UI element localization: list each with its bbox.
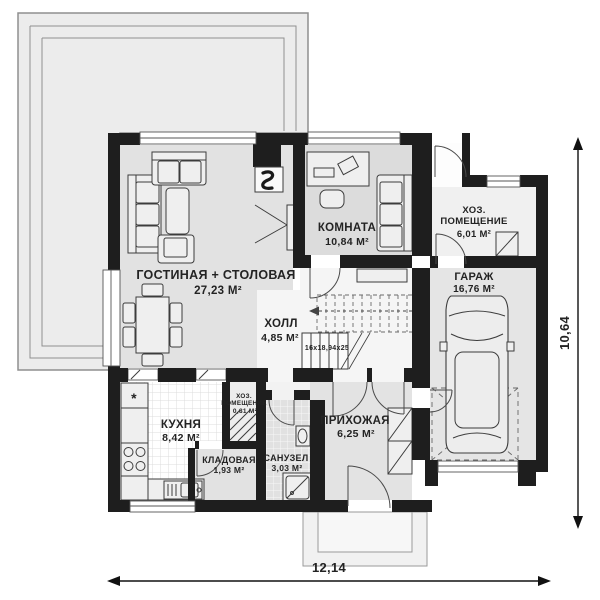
- utility-name-line2: ПОМЕЩЕНИЕ: [440, 216, 507, 227]
- passage-floor: [268, 368, 293, 382]
- utility-small-area: 0,81 М²: [233, 408, 258, 415]
- kitchen-pass-through-left: [128, 369, 158, 380]
- dimension-height-value: 10,64: [557, 316, 572, 351]
- utility-small-name-line1: ХОЗ.: [236, 393, 252, 400]
- car: [440, 296, 514, 453]
- garage-gate: [438, 461, 518, 472]
- utility-name-line1: ХОЗ.: [462, 205, 485, 216]
- floor-plan-page: ГОСТИНАЯ + СТОЛОВАЯ 27,23 М² КОМНАТА 10,…: [0, 0, 600, 600]
- kitchen-window: [130, 501, 195, 512]
- pantry-name: КЛАДОВАЯ: [202, 455, 255, 465]
- entry-wardrobe: [388, 408, 412, 474]
- bathroom-area: 3,03 М²: [272, 463, 303, 473]
- kitchen-pass-through-right: [196, 369, 226, 380]
- fireplace-stove: [255, 167, 283, 192]
- boiler: [496, 232, 518, 256]
- floor-plan-svg: ГОСТИНАЯ + СТОЛОВАЯ 27,23 М² КОМНАТА 10,…: [0, 0, 600, 600]
- desk-chair: [320, 190, 344, 208]
- utility-window: [487, 176, 520, 187]
- living-room-area: 27,23 М²: [194, 285, 242, 297]
- room-sofa: [377, 175, 412, 251]
- garage-area: 16,76 М²: [453, 284, 495, 295]
- hall-console: [357, 269, 407, 282]
- dimension-width-value: 12,14: [312, 560, 347, 575]
- living-room-side-window: [103, 270, 120, 366]
- tv: [287, 205, 294, 250]
- room-window: [308, 132, 400, 144]
- utility-small-name-line2: ПОМЕЩЕНИЕ: [221, 400, 266, 407]
- utility-entrance-niche: [433, 143, 462, 187]
- dimension-width: 12,14: [107, 560, 551, 586]
- dining-table: [136, 297, 169, 353]
- room-area: 10,84 М²: [325, 236, 369, 248]
- room-name: КОМНАТА: [318, 222, 376, 234]
- stairs-size-label: 16x18,94x25: [305, 345, 349, 352]
- kitchen-name: КУХНЯ: [161, 419, 201, 431]
- hall-name: ХОЛЛ: [264, 318, 297, 330]
- dimension-height: 10,64: [557, 137, 583, 529]
- coffee-table: [166, 188, 189, 234]
- entry-porch: [303, 512, 427, 566]
- entry-area: 6,25 М²: [337, 428, 375, 440]
- living-room-window: [140, 132, 256, 144]
- washbasin: [296, 426, 310, 446]
- entry-name: ПРИХОЖАЯ: [320, 415, 390, 427]
- kitchen-area: 8,42 М²: [162, 432, 200, 444]
- hall-area: 4,85 М²: [261, 332, 299, 344]
- living-room-name: ГОСТИНАЯ + СТОЛОВАЯ: [136, 268, 295, 282]
- pantry-area: 1,93 М²: [214, 465, 245, 475]
- garage-name: ГАРАЖ: [454, 271, 493, 283]
- utility-area: 6,01 М²: [457, 229, 491, 240]
- bathroom-name: САНУЗЕЛ: [264, 453, 309, 463]
- shower: [283, 473, 312, 502]
- fridge-symbol: *: [131, 390, 137, 406]
